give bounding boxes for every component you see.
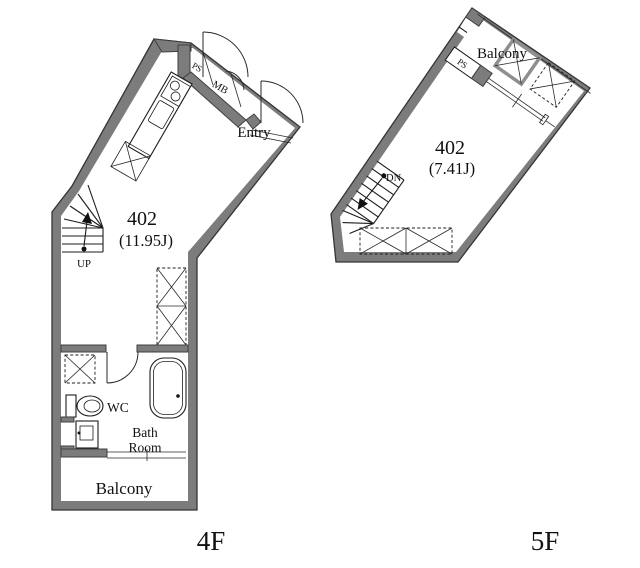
floor-5f-plan: PS xyxy=(326,8,592,301)
5f-unit-number: 402 xyxy=(435,137,465,159)
bathroom-label-line1: Bath xyxy=(132,425,158,440)
4f-balcony-wall xyxy=(61,449,107,457)
4f-balcony-label: Balcony xyxy=(96,479,153,498)
wash-basin xyxy=(76,421,98,448)
4f-unit-area: (11.95J) xyxy=(119,231,173,250)
5f-balcony-label: Balcony xyxy=(477,46,527,62)
wc-label: WC xyxy=(107,400,129,415)
floor-plan-drawing: PS MB xyxy=(0,0,640,568)
up-arrow-dot xyxy=(82,247,87,252)
4f-bath-wall-right xyxy=(137,345,188,352)
bathroom-label-line2: Room xyxy=(128,440,162,455)
dn-label: DN xyxy=(386,173,402,184)
toilet xyxy=(66,395,103,417)
4f-floor-caption: 4F xyxy=(197,526,226,556)
entry-label: Entry xyxy=(237,125,271,141)
5f-floor-caption: 5F xyxy=(531,526,560,556)
4f-bath-wall-left xyxy=(61,345,106,352)
4f-unit-number: 402 xyxy=(127,208,157,230)
floor-4f-plan: PS MB xyxy=(52,32,303,510)
basin-stub-top xyxy=(61,417,74,422)
floor-plan-page: PS MB xyxy=(0,0,640,568)
up-label: UP xyxy=(77,258,91,270)
5f-unit-area: (7.41J) xyxy=(429,159,475,178)
bathtub xyxy=(150,358,186,418)
